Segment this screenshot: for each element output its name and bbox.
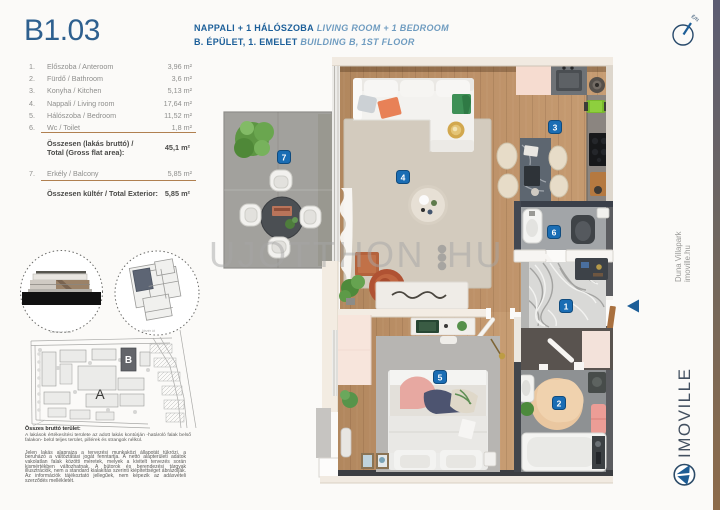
svg-text:3: 3 xyxy=(553,123,558,133)
svg-text:Vezér út: Vezér út xyxy=(142,329,155,333)
svg-text:1: 1 xyxy=(564,302,569,312)
svg-text:6: 6 xyxy=(552,228,557,238)
svg-text:B: B xyxy=(125,355,132,366)
svg-text:7: 7 xyxy=(282,153,287,163)
svg-text:É/N: É/N xyxy=(690,13,701,24)
svg-text:IMOVILLE: IMOVILLE xyxy=(675,368,694,458)
svg-text:Duna Villaparkimoville.hu: Duna Villaparkimoville.hu xyxy=(674,231,692,282)
svg-text:4: 4 xyxy=(401,173,406,183)
svg-text:5: 5 xyxy=(438,373,443,383)
svg-text:A: A xyxy=(95,386,105,402)
svg-text:2: 2 xyxy=(557,399,562,409)
svg-text:Dunasor utca: Dunasor utca xyxy=(50,330,71,334)
